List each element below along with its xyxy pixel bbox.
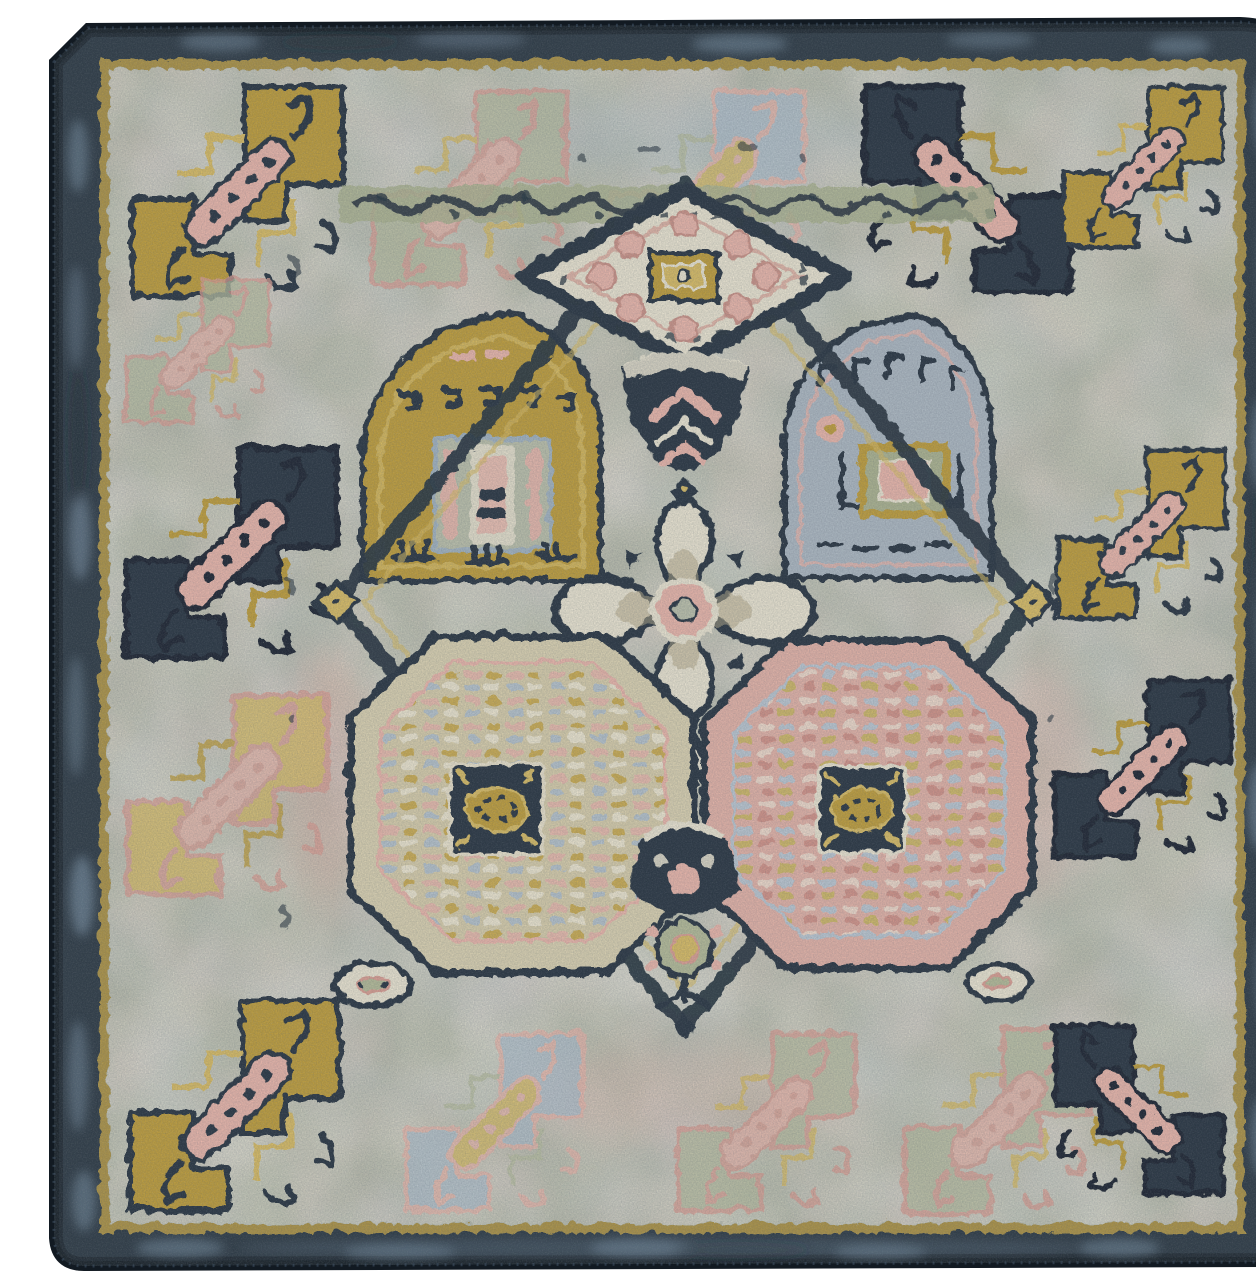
- rug-image: [40, 16, 1256, 1272]
- haze-overlay: [40, 16, 1256, 1272]
- rug-product-photo: Square vintage tribal-style area rug, ov…: [40, 16, 1256, 1272]
- rug: [40, 16, 1256, 1272]
